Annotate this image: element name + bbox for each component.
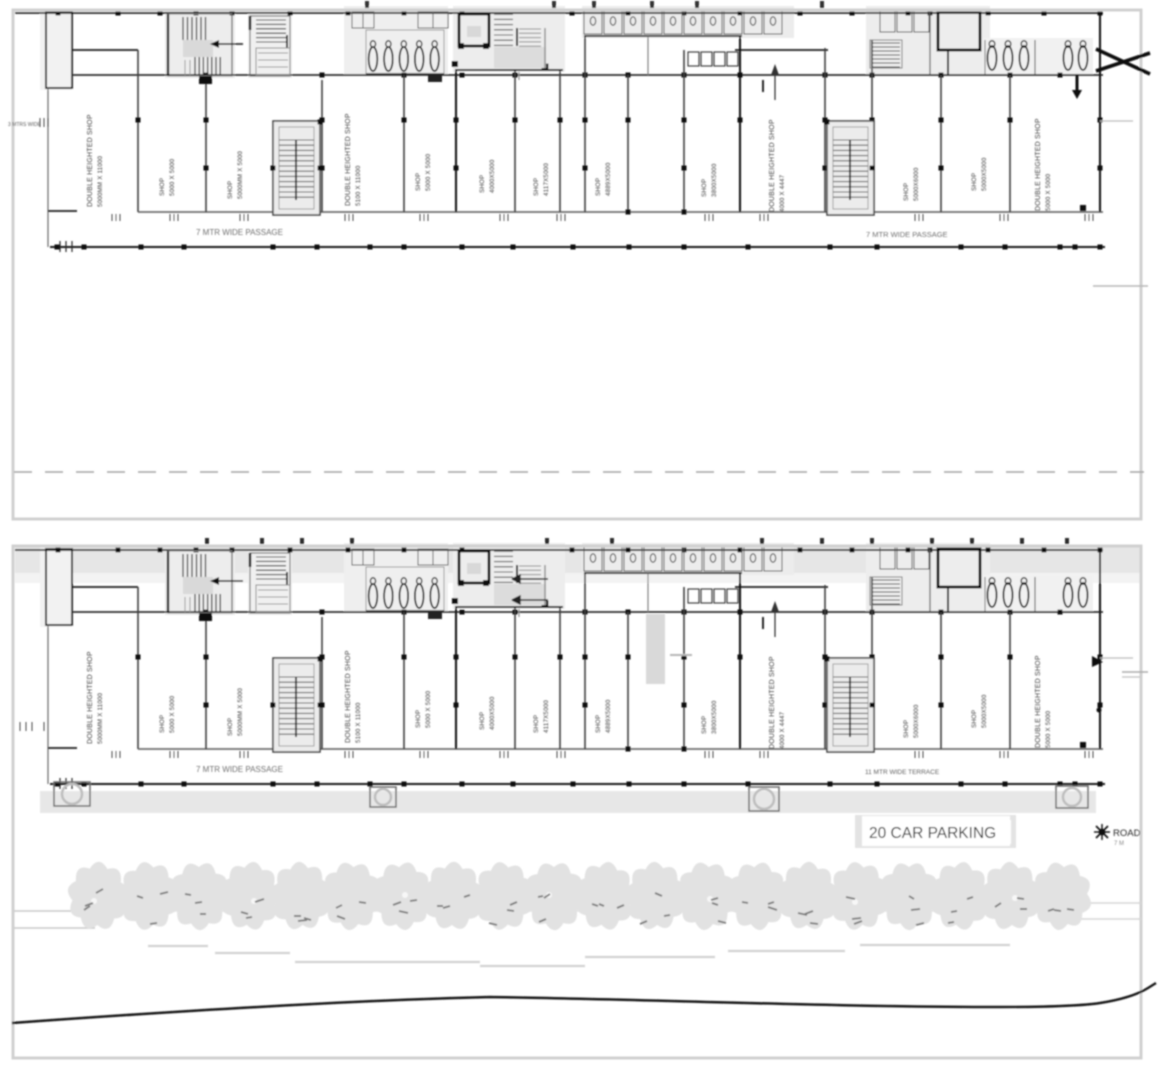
svg-text:SHOP: SHOP	[903, 183, 910, 201]
svg-text:3800X5000: 3800X5000	[711, 163, 718, 197]
svg-text:7 MTR WIDE PASSAGE: 7 MTR WIDE PASSAGE	[196, 228, 283, 237]
svg-text:5000 X 5000: 5000 X 5000	[425, 153, 432, 191]
svg-text:DOUBLE HEIGHTED SHOP: DOUBLE HEIGHTED SHOP	[1035, 118, 1042, 211]
svg-text:SHOP: SHOP	[971, 173, 978, 191]
svg-text:5000MM X 11000: 5000MM X 11000	[97, 155, 104, 207]
svg-text:ROAD: ROAD	[1113, 828, 1141, 839]
svg-text:7 M: 7 M	[1114, 841, 1124, 847]
svg-text:5000MM X 5000: 5000MM X 5000	[237, 151, 244, 199]
svg-text:SHOP: SHOP	[227, 181, 234, 199]
svg-text:SHOP: SHOP	[479, 175, 486, 193]
svg-text:SHOP: SHOP	[415, 173, 422, 191]
svg-text:4000 X 4447: 4000 X 4447	[779, 174, 786, 212]
svg-text:11 MTR WIDE TERRACE: 11 MTR WIDE TERRACE	[865, 769, 940, 776]
svg-text:SHOP: SHOP	[159, 178, 166, 196]
svg-text:5000X5000: 5000X5000	[981, 157, 988, 191]
svg-text:5000 X 5000: 5000 X 5000	[1045, 173, 1052, 211]
svg-text:SHOP: SHOP	[533, 178, 540, 196]
svg-text:SHOP: SHOP	[595, 178, 602, 196]
svg-text:5000X6000: 5000X6000	[913, 167, 920, 201]
svg-text:SHOP: SHOP	[701, 179, 708, 197]
svg-text:DOUBLE HEIGHTED SHOP: DOUBLE HEIGHTED SHOP	[769, 119, 776, 212]
svg-text:4117X5000: 4117X5000	[543, 163, 550, 196]
svg-text:5000 X 5000: 5000 X 5000	[169, 158, 176, 196]
svg-text:5100 X 11000: 5100 X 11000	[355, 165, 362, 206]
svg-text:7 MTR WIDE PASSAGE: 7 MTR WIDE PASSAGE	[866, 230, 948, 239]
svg-text:DOUBLE HEIGHTED SHOP: DOUBLE HEIGHTED SHOP	[87, 114, 94, 207]
svg-text:3 MTRS WIDE: 3 MTRS WIDE	[8, 122, 41, 128]
svg-text:4000X5000: 4000X5000	[489, 159, 496, 193]
svg-text:20 CAR PARKING: 20 CAR PARKING	[869, 825, 996, 842]
svg-text:4889X5000: 4889X5000	[605, 162, 612, 196]
svg-text:DOUBLE HEIGHTED SHOP: DOUBLE HEIGHTED SHOP	[345, 113, 352, 206]
